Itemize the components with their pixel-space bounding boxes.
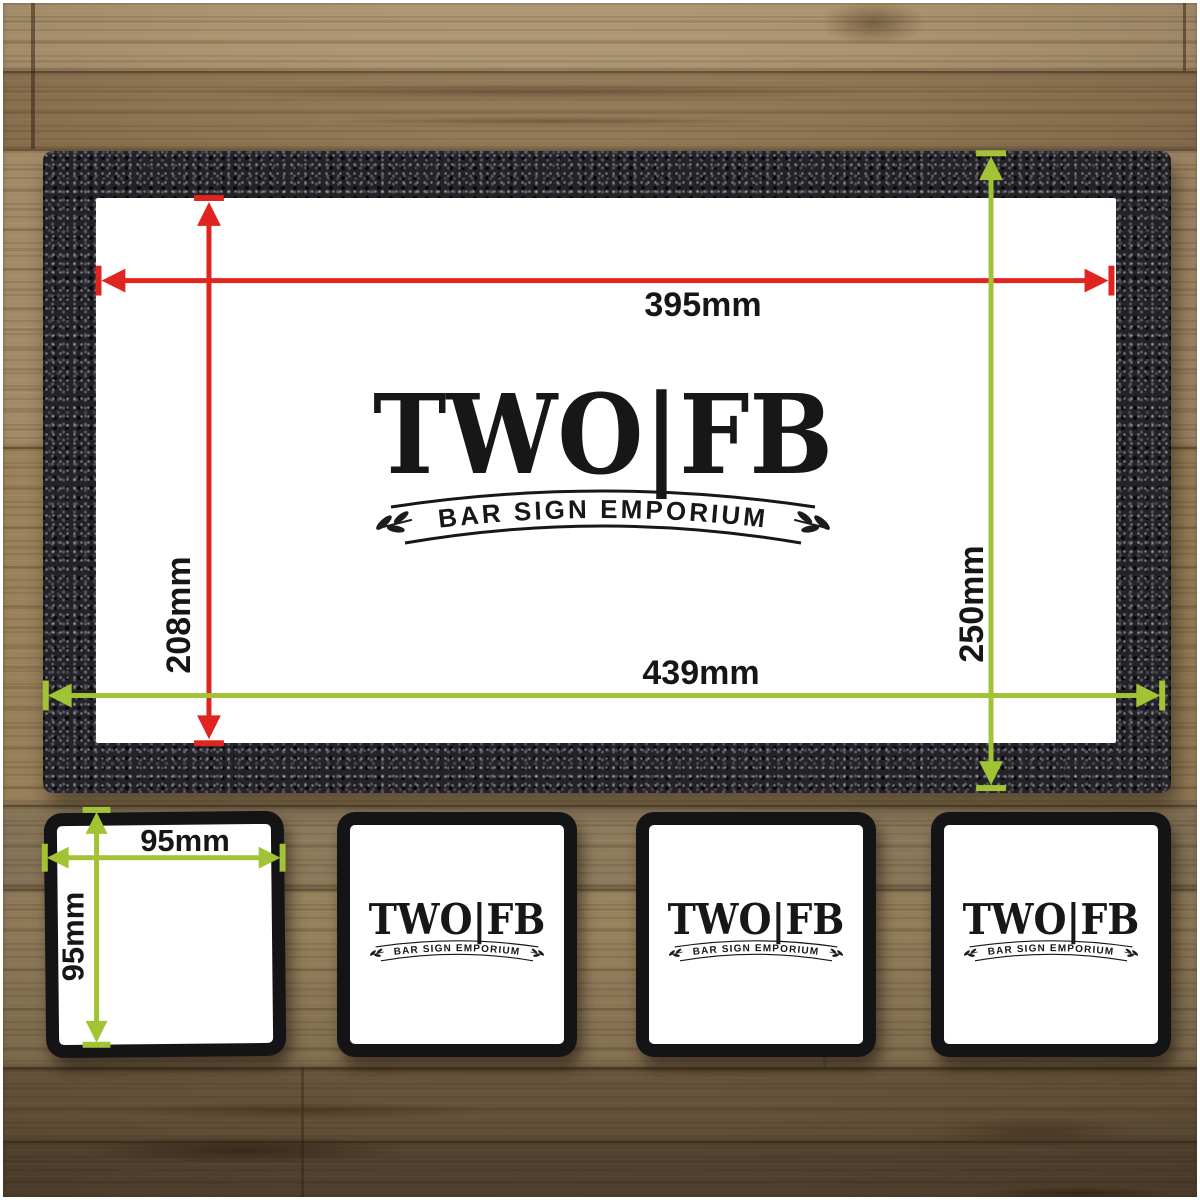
twofb-logo-small: TWO|FB BAR SIGN EMPORIUM bbox=[361, 897, 553, 972]
wood-knot bbox=[33, 1133, 453, 1167]
twofb-logo-small: TWO|FB BAR SIGN EMPORIUM bbox=[660, 897, 852, 972]
logo-title: TWO|FB bbox=[668, 897, 845, 944]
inner-height-label: 208mm bbox=[161, 535, 197, 695]
logo-subtitle: BAR SIGN EMPORIUM bbox=[393, 943, 520, 958]
outer-height-label: 250mm bbox=[954, 524, 990, 684]
wood-plank bbox=[3, 3, 1197, 71]
leaf-ornament-right bbox=[529, 947, 546, 959]
twofb-logo: TWO|FB BAR SIGN EMPORIUM bbox=[955, 897, 1147, 972]
inner-width-label: 395mm bbox=[563, 287, 843, 323]
coaster-with-logo: TWO|FB BAR SIGN EMPORIUM bbox=[931, 812, 1171, 1057]
twofb-logo-large: TWO|FB BAR SIGN EMPORIUM bbox=[353, 377, 853, 572]
logo-subtitle: BAR SIGN EMPORIUM bbox=[692, 943, 819, 958]
wood-grain-streak bbox=[953, 1185, 1200, 1200]
logo-title: TWO|FB bbox=[373, 377, 833, 500]
wood-plank-seam bbox=[31, 3, 35, 149]
wood-grain-streak bbox=[903, 1111, 1173, 1153]
leaf-ornament-left bbox=[962, 947, 979, 959]
product-size-guide: TWO|FB BAR SIGN EMPORIUM TWO|FB bbox=[0, 0, 1200, 1200]
leaf-ornament-right bbox=[828, 947, 845, 959]
logo-subtitle: BAR SIGN EMPORIUM bbox=[436, 494, 769, 534]
twofb-logo: TWO|FB BAR SIGN EMPORIUM bbox=[353, 377, 853, 572]
coaster-width-label: 95mm bbox=[105, 824, 265, 857]
leaf-ornament-right bbox=[791, 508, 834, 540]
coaster-with-logo: TWO|FB BAR SIGN EMPORIUM bbox=[636, 812, 876, 1057]
outer-width-label: 439mm bbox=[561, 655, 841, 691]
coaster-print-area: TWO|FB BAR SIGN EMPORIUM bbox=[350, 825, 564, 1044]
leaf-ornament-right bbox=[1123, 947, 1140, 959]
wood-plank-seam bbox=[1183, 3, 1186, 71]
logo-subtitle: BAR SIGN EMPORIUM bbox=[987, 943, 1114, 958]
logo-title: TWO|FB bbox=[369, 897, 546, 944]
twofb-logo: TWO|FB BAR SIGN EMPORIUM bbox=[660, 897, 852, 972]
leaf-ornament-left bbox=[368, 947, 385, 959]
wood-grain-streak bbox=[243, 115, 863, 127]
twofb-logo-small: TWO|FB BAR SIGN EMPORIUM bbox=[955, 897, 1147, 972]
coaster-print-area: TWO|FB BAR SIGN EMPORIUM bbox=[649, 825, 863, 1044]
coaster-height-label: 95mm bbox=[57, 857, 90, 1017]
twofb-logo: TWO|FB BAR SIGN EMPORIUM bbox=[361, 897, 553, 972]
wood-grain-streak bbox=[63, 81, 1013, 103]
leaf-ornament-left bbox=[372, 508, 415, 540]
coaster-print-area: TWO|FB BAR SIGN EMPORIUM bbox=[944, 825, 1158, 1044]
logo-title: TWO|FB bbox=[963, 897, 1140, 944]
coaster-with-logo: TWO|FB BAR SIGN EMPORIUM bbox=[337, 812, 577, 1057]
wood-grain-streak bbox=[43, 1098, 563, 1124]
leaf-ornament-left bbox=[667, 947, 684, 959]
